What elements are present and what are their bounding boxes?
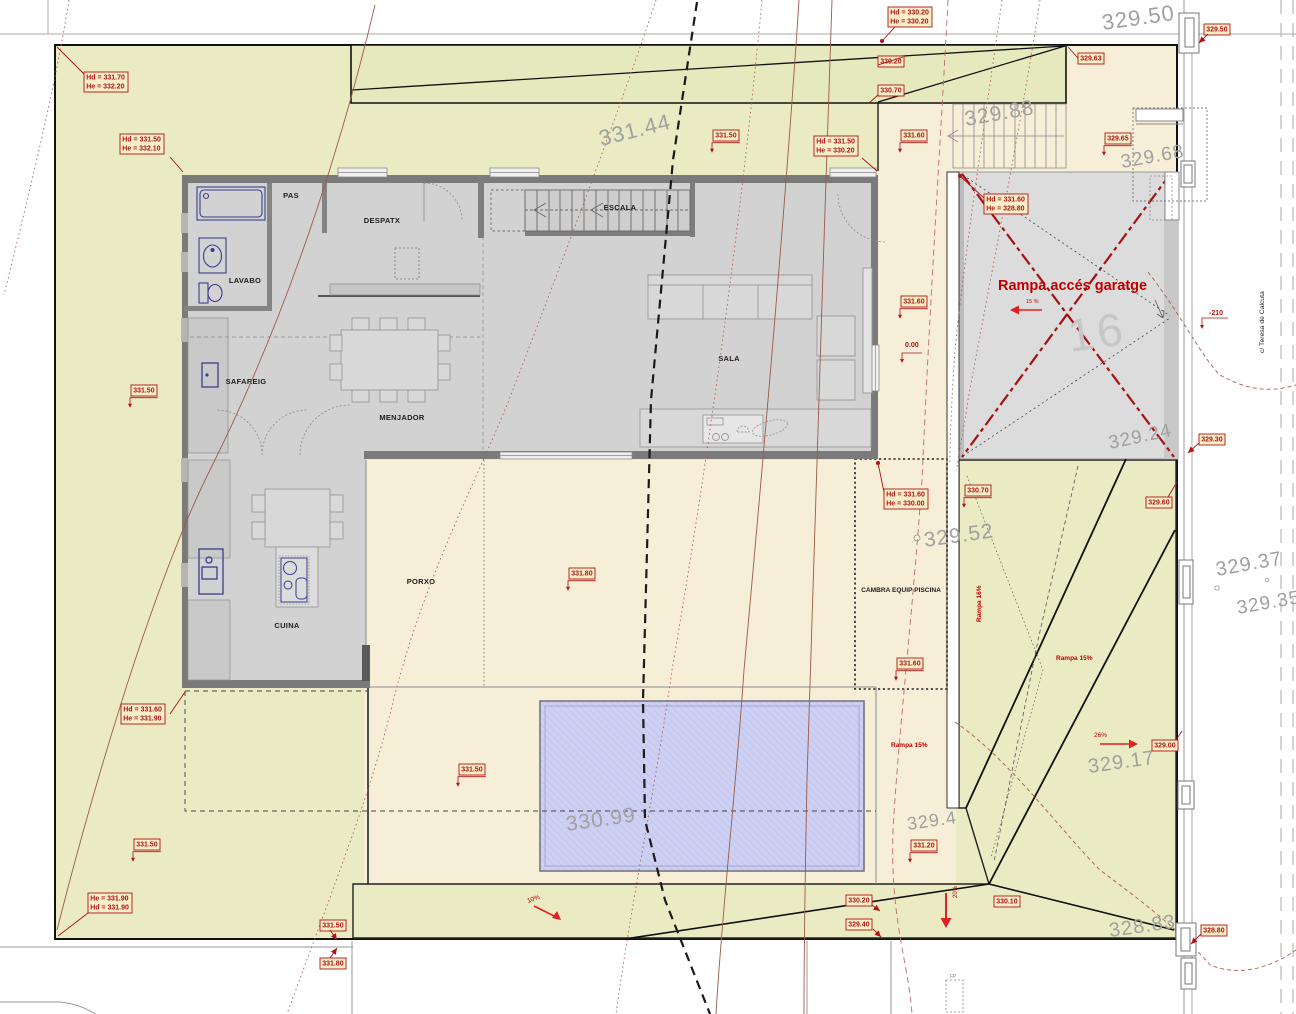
svg-text:He = 328.80: He = 328.80 <box>986 206 1024 213</box>
svg-text:DESPATX: DESPATX <box>364 216 400 225</box>
svg-text:Rampa 16%: Rampa 16% <box>976 585 983 622</box>
svg-text:He = 330.20: He = 330.20 <box>816 148 854 155</box>
svg-text:MENJADOR: MENJADOR <box>379 413 425 422</box>
svg-text:331.60: 331.60 <box>899 660 921 667</box>
svg-text:331.20: 331.20 <box>913 842 935 849</box>
svg-text:Rampa 15%: Rampa 15% <box>891 742 928 749</box>
svg-text:PORXO: PORXO <box>407 577 436 586</box>
svg-text:329.60: 329.60 <box>1148 499 1170 506</box>
svg-text:15 %: 15 % <box>1026 299 1039 305</box>
svg-text:330.20: 330.20 <box>880 58 902 65</box>
svg-text:16: 16 <box>1064 302 1130 362</box>
svg-text:SALA: SALA <box>718 354 740 363</box>
svg-text:-210: -210 <box>1209 310 1223 317</box>
svg-text:330.10: 330.10 <box>996 898 1018 905</box>
svg-text:331.60: 331.60 <box>903 298 925 305</box>
svg-text:He = 331.90: He = 331.90 <box>123 716 161 723</box>
svg-text:Hd = 331.70: Hd = 331.70 <box>86 74 125 81</box>
svg-text:Rampa accés garatge: Rampa accés garatge <box>998 278 1147 294</box>
svg-text:c/ Teresa de Calcuta: c/ Teresa de Calcuta <box>1259 291 1266 353</box>
svg-text:329.00: 329.00 <box>1154 742 1176 749</box>
svg-text:PAS: PAS <box>283 191 299 200</box>
svg-text:328.80: 328.80 <box>1203 927 1225 934</box>
svg-text:0.00: 0.00 <box>905 342 919 349</box>
svg-text:He = 330.20: He = 330.20 <box>890 19 928 26</box>
svg-text:Hd = 330.20: Hd = 330.20 <box>890 9 929 16</box>
svg-text:LAVABO: LAVABO <box>229 276 261 285</box>
svg-text:331.80: 331.80 <box>571 570 593 577</box>
svg-text:Rampa 15%: Rampa 15% <box>1056 655 1093 662</box>
svg-text:331.80: 331.80 <box>322 960 344 967</box>
svg-text:He = 331.90: He = 331.90 <box>90 895 128 902</box>
svg-text:CAMBRA EQUIP PISCINA: CAMBRA EQUIP PISCINA <box>861 587 941 594</box>
svg-text:331.50: 331.50 <box>136 841 158 848</box>
svg-text:Hd = 331.60: Hd = 331.60 <box>986 196 1025 203</box>
svg-text:329.65: 329.65 <box>1107 135 1129 142</box>
svg-text:Hd = 331.90: Hd = 331.90 <box>90 905 129 912</box>
svg-text:331.60: 331.60 <box>903 132 925 139</box>
svg-text:FP: FP <box>950 974 957 980</box>
svg-text:331.50: 331.50 <box>322 922 344 929</box>
svg-text:330.70: 330.70 <box>967 487 989 494</box>
svg-text:Hd = 331.50: Hd = 331.50 <box>122 136 161 143</box>
svg-text:329.50: 329.50 <box>1206 26 1228 33</box>
svg-text:He = 332.10: He = 332.10 <box>122 146 160 153</box>
svg-text:CUINA: CUINA <box>274 621 300 630</box>
svg-text:SAFAREIG: SAFAREIG <box>226 377 267 386</box>
svg-text:He = 330.00: He = 330.00 <box>886 501 924 508</box>
svg-text:26%: 26% <box>1094 732 1107 739</box>
svg-text:331.50: 331.50 <box>133 387 155 394</box>
svg-text:ESCALA: ESCALA <box>604 203 637 212</box>
svg-text:Hd = 331.60: Hd = 331.60 <box>886 491 925 498</box>
svg-text:330.20: 330.20 <box>848 897 870 904</box>
svg-text:329.40: 329.40 <box>848 921 870 928</box>
svg-text:331.50: 331.50 <box>715 132 737 139</box>
svg-text:He = 332.20: He = 332.20 <box>86 84 124 91</box>
svg-text:330.70: 330.70 <box>880 87 902 94</box>
svg-text:329.63: 329.63 <box>1080 55 1102 62</box>
svg-text:329.30: 329.30 <box>1201 436 1223 443</box>
svg-text:Hd = 331.60: Hd = 331.60 <box>123 706 162 713</box>
svg-text:331.50: 331.50 <box>461 766 483 773</box>
svg-text:20%: 20% <box>953 885 959 898</box>
svg-text:Hd = 331.50: Hd = 331.50 <box>816 138 855 145</box>
